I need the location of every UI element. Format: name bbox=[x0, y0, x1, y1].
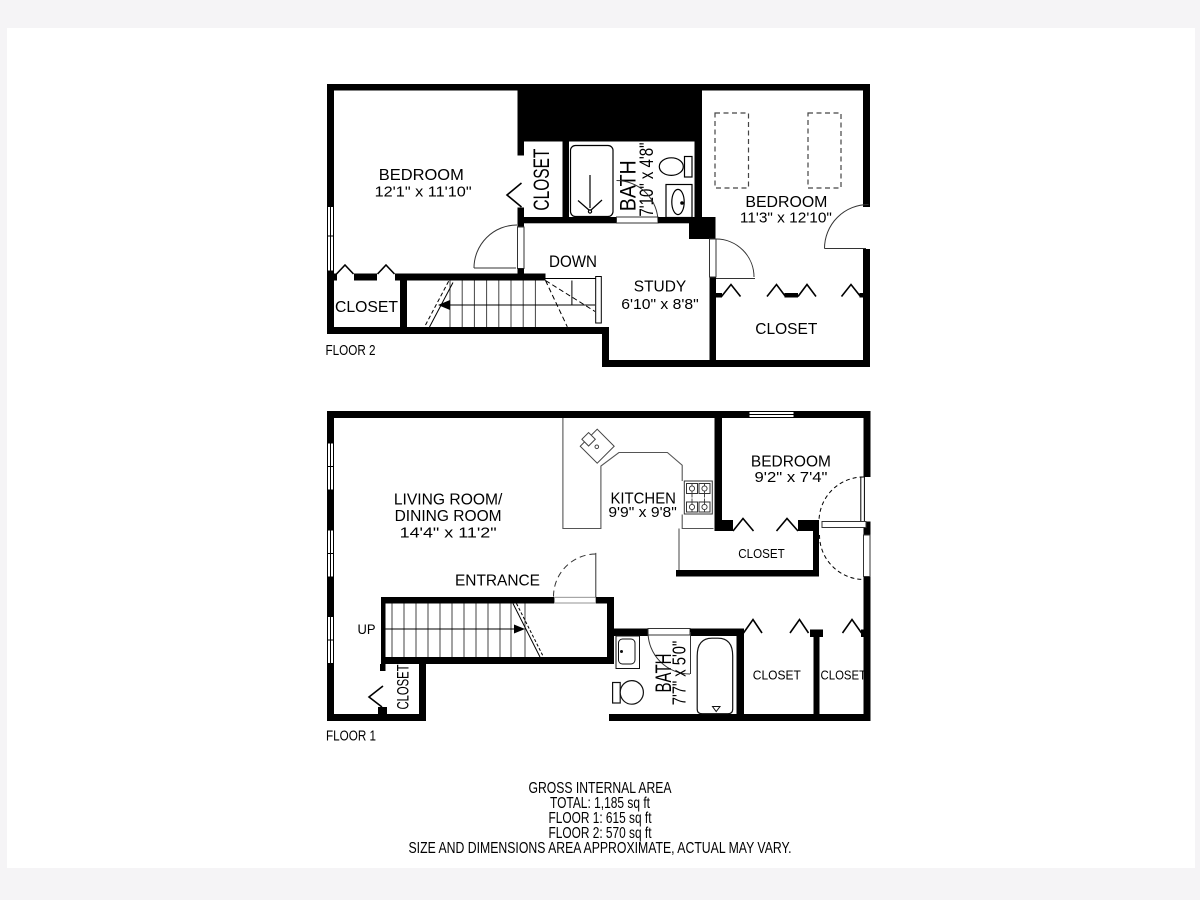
svg-text:UP: UP bbox=[358, 621, 376, 637]
svg-text:CLOSET: CLOSET bbox=[821, 668, 867, 683]
svg-text:BEDROOM: BEDROOM bbox=[751, 454, 831, 471]
svg-text:12'1" x 11'10": 12'1" x 11'10" bbox=[375, 183, 472, 200]
svg-text:FLOOR 1: FLOOR 1 bbox=[326, 729, 376, 745]
svg-text:CLOSET: CLOSET bbox=[529, 148, 554, 210]
svg-text:ENTRANCE: ENTRANCE bbox=[455, 573, 540, 590]
svg-text:SIZE AND DIMENSIONS AREA APPRO: SIZE AND DIMENSIONS AREA APPROXIMATE, AC… bbox=[409, 840, 792, 857]
svg-text:CLOSET: CLOSET bbox=[738, 546, 785, 561]
svg-text:14'4" x 11'2": 14'4" x 11'2" bbox=[400, 525, 497, 542]
svg-text:11'3" x 12'10": 11'3" x 12'10" bbox=[740, 210, 832, 227]
svg-text:LIVING ROOM/: LIVING ROOM/ bbox=[394, 492, 503, 509]
svg-text:DOWN: DOWN bbox=[549, 253, 597, 271]
svg-text:BEDROOM: BEDROOM bbox=[745, 194, 827, 211]
svg-text:7'7" x 5'0": 7'7" x 5'0" bbox=[668, 641, 689, 706]
svg-text:6'10" x 8'8": 6'10" x 8'8" bbox=[621, 296, 699, 313]
svg-text:FLOOR 2: FLOOR 2 bbox=[326, 343, 376, 359]
svg-text:CLOSET: CLOSET bbox=[394, 665, 413, 710]
svg-text:9'9" x 9'8": 9'9" x 9'8" bbox=[608, 504, 677, 521]
svg-text:CLOSET: CLOSET bbox=[335, 299, 398, 316]
svg-text:STUDY: STUDY bbox=[634, 278, 687, 295]
svg-text:9'2" x 7'4": 9'2" x 7'4" bbox=[755, 469, 828, 486]
svg-text:DINING ROOM: DINING ROOM bbox=[395, 508, 502, 525]
svg-text:CLOSET: CLOSET bbox=[753, 668, 801, 683]
svg-text:CLOSET: CLOSET bbox=[755, 321, 817, 338]
svg-text:BEDROOM: BEDROOM bbox=[379, 167, 464, 184]
